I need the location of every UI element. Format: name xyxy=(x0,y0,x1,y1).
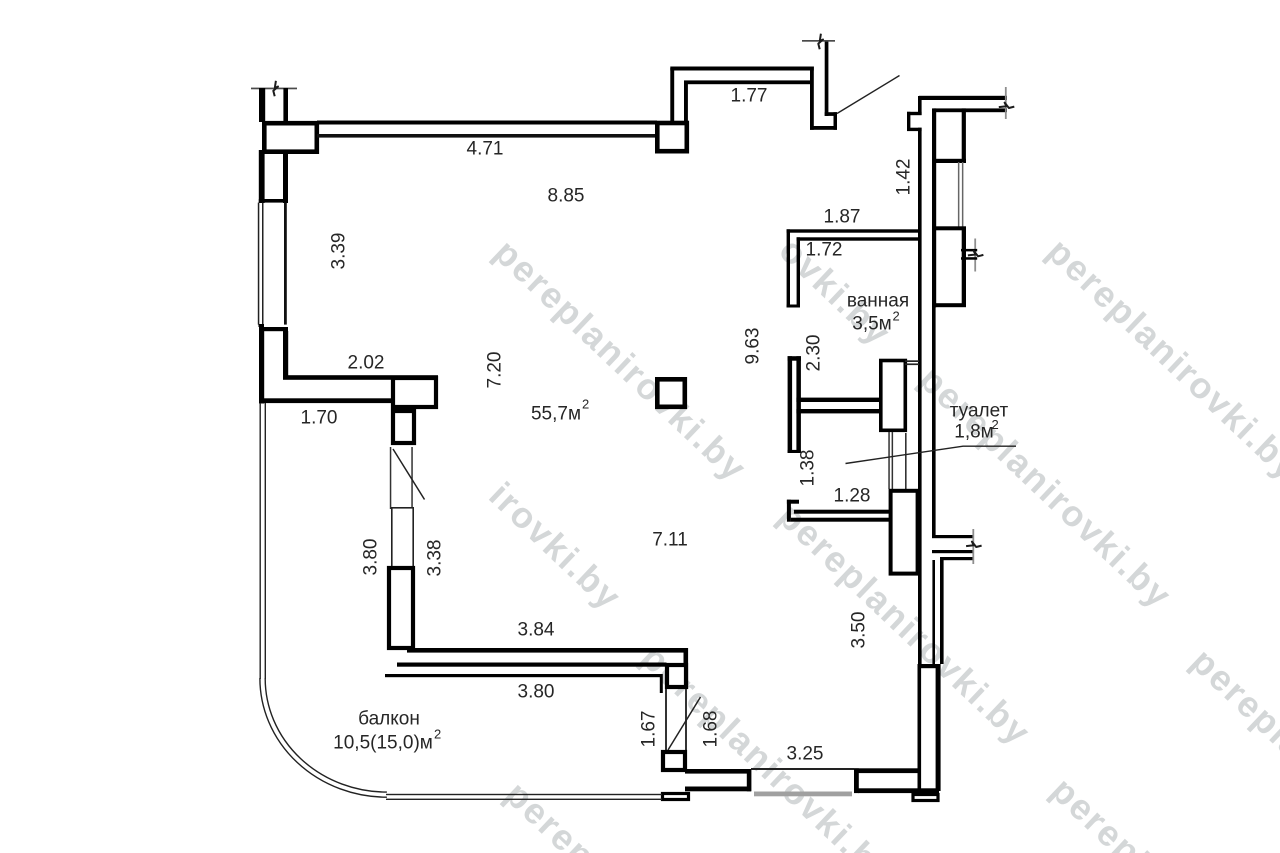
svg-text:1.68: 1.68 xyxy=(701,711,722,748)
svg-text:3.39: 3.39 xyxy=(329,233,350,270)
svg-text:3,5м: 3,5м xyxy=(852,314,891,335)
svg-text:3.80: 3.80 xyxy=(361,539,382,576)
svg-text:55,7м: 55,7м xyxy=(531,404,581,425)
svg-text:3.80: 3.80 xyxy=(518,682,555,703)
svg-text:10,5(15,0)м: 10,5(15,0)м xyxy=(333,733,433,754)
svg-text:балкон: балкон xyxy=(358,709,420,730)
svg-text:1.28: 1.28 xyxy=(834,486,871,507)
svg-text:3.25: 3.25 xyxy=(787,744,824,765)
svg-text:2: 2 xyxy=(434,727,441,742)
svg-text:1.70: 1.70 xyxy=(301,408,338,429)
svg-text:2: 2 xyxy=(992,417,999,432)
svg-text:1.67: 1.67 xyxy=(639,711,660,748)
svg-text:2.30: 2.30 xyxy=(804,335,825,372)
svg-text:7.11: 7.11 xyxy=(652,530,688,551)
svg-text:1.77: 1.77 xyxy=(731,86,768,107)
svg-text:2: 2 xyxy=(893,309,900,324)
svg-text:9.63: 9.63 xyxy=(743,328,764,365)
svg-text:4.71: 4.71 xyxy=(467,139,504,160)
svg-text:2.02: 2.02 xyxy=(348,353,385,374)
svg-text:ванная: ванная xyxy=(847,291,909,312)
svg-text:туалет: туалет xyxy=(950,401,1009,422)
svg-text:8.85: 8.85 xyxy=(548,186,585,207)
svg-text:1.87: 1.87 xyxy=(824,207,861,228)
svg-text:1,8м: 1,8м xyxy=(954,422,993,443)
svg-text:1.72: 1.72 xyxy=(806,240,843,261)
svg-text:2: 2 xyxy=(582,397,589,412)
svg-text:1.38: 1.38 xyxy=(798,450,819,487)
svg-text:7.20: 7.20 xyxy=(485,352,506,389)
svg-text:3.84: 3.84 xyxy=(518,620,555,641)
svg-text:3.50: 3.50 xyxy=(849,612,870,649)
svg-text:1.42: 1.42 xyxy=(894,159,915,196)
svg-text:3.38: 3.38 xyxy=(425,540,446,577)
